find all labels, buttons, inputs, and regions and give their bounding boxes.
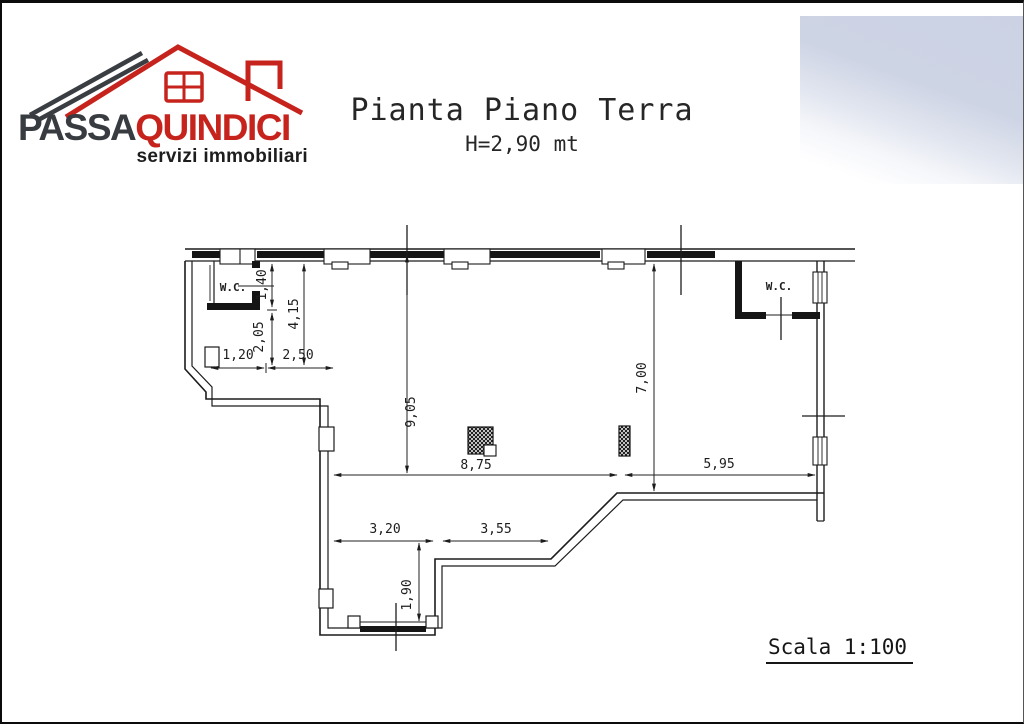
pillar-right — [619, 426, 630, 456]
wall-pilaster-notches — [205, 347, 334, 608]
dim-label-wing-right: 3,55 — [480, 522, 511, 537]
wing-bottom-window — [348, 603, 438, 651]
right-wall-windows — [813, 272, 827, 465]
wc-left-label: W.C. — [220, 281, 247, 294]
floor-plan-drawing: W.C. W.C. — [2, 3, 1024, 724]
dim-label-main-width: 8,75 — [460, 458, 491, 473]
dim-label-main-depth: 9,05 — [404, 396, 419, 427]
dim-label-wing-left: 3,20 — [369, 522, 400, 537]
dim-label-wc-width: 1,20 — [222, 348, 253, 363]
dim-label-entry-width: 2,50 — [282, 348, 313, 363]
scanned-floor-plan-page: PASSAQUINDICI servizi immobiliari Pianta… — [0, 0, 1024, 724]
dim-label-wing-depth: 1,90 — [400, 579, 415, 610]
pillars — [468, 426, 630, 456]
dim-label-wc-height: 1,40 — [255, 269, 270, 300]
exterior-walls — [185, 249, 855, 635]
wc-right-label: W.C. — [766, 280, 793, 293]
dim-label-right-width: 5,95 — [703, 457, 734, 472]
scale-note: Scala 1:100 — [766, 635, 913, 664]
dim-label-left-total: 4,15 — [287, 298, 302, 329]
dim-label-right-depth: 7,00 — [635, 362, 650, 393]
dim-label-left-inner: 2,05 — [252, 321, 267, 352]
wc-right-room: W.C. — [735, 261, 820, 340]
